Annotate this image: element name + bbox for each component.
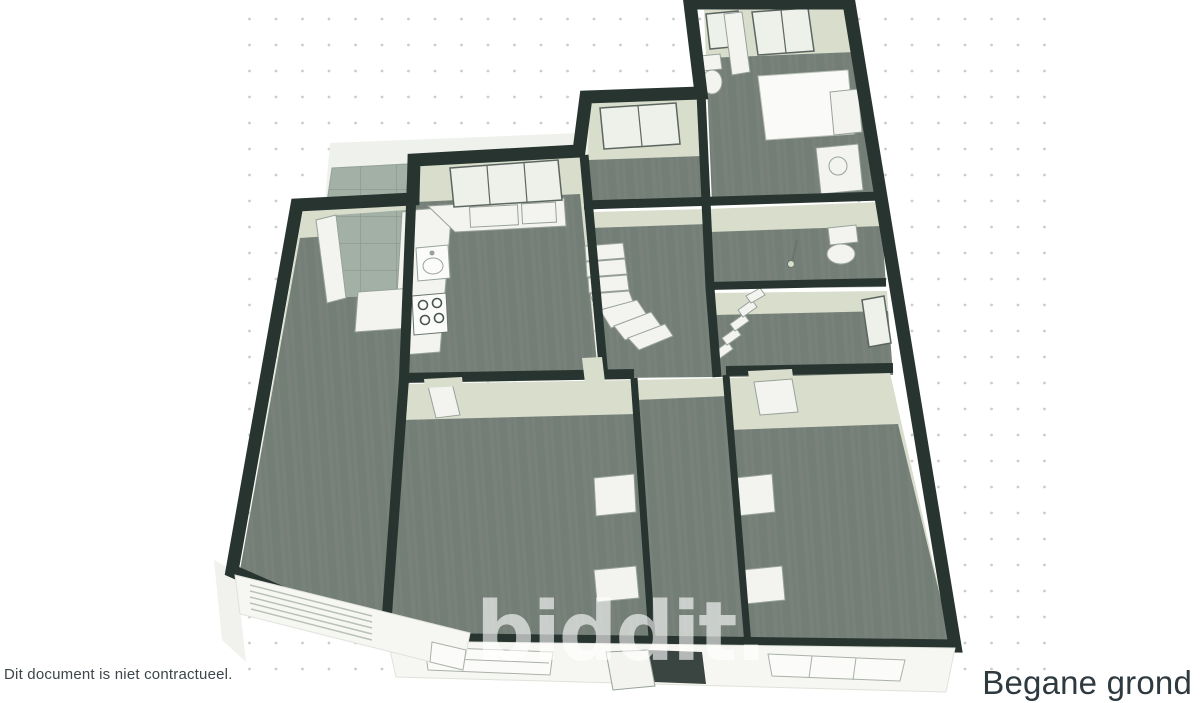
kitchen-sink: [416, 245, 450, 281]
kitchen-stove: [412, 293, 448, 335]
small-room-window: [600, 103, 680, 149]
toilet-tank: [828, 225, 858, 245]
toilet-bowl: [827, 244, 855, 264]
floor-title: Begane grond: [982, 664, 1192, 702]
disclaimer-text: Dit document is niet contractueel.: [4, 666, 233, 683]
bathroom-sink: [816, 144, 863, 194]
bathroom-cabinet: [830, 89, 862, 135]
kitchen-window: [450, 160, 562, 207]
door-leaf-bottom-right-room: [754, 379, 798, 415]
biddit-watermark: biddit.: [476, 592, 765, 674]
room-wc: [708, 202, 886, 288]
